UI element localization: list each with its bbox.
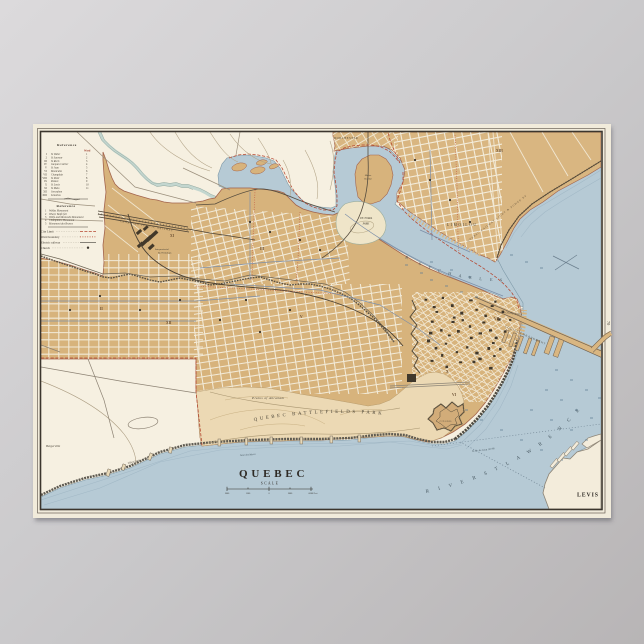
svg-text:X: X [446,370,449,374]
svg-text:XI: XI [170,234,175,238]
svg-text:Plains of Abraham: Plains of Abraham [251,396,285,400]
svg-text:CITADEL: CITADEL [440,420,453,423]
svg-text:LEVIS: LEVIS [577,493,599,499]
svg-text:VII: VII [494,317,500,321]
svg-text:VICTORIA: VICTORIA [360,217,373,220]
svg-text:VI: VI [452,393,457,397]
svg-text:Hospital: Hospital [363,178,372,181]
svg-text:Electric railway: Electric railway [41,241,61,245]
svg-text:Ry Workshops: Ry Workshops [158,252,172,254]
svg-text:XIII: XIII [496,149,503,153]
svg-text:City Limit: City Limit [41,230,54,234]
svg-text:XIII: XIII [42,194,47,197]
svg-text:70: 70 [606,321,611,325]
svg-text:6000 Feet: 6000 Feet [309,493,318,495]
svg-text:Monument des Braves: Monument des Braves [48,222,73,225]
svg-text:Church: Church [41,246,50,250]
svg-text:Bergerville: Bergerville [46,444,61,448]
svg-text:LIMOILOU: LIMOILOU [447,223,478,227]
svg-text:V: V [300,315,303,319]
svg-text:QUEBEC: QUEBEC [239,468,308,480]
svg-text:PARK: PARK [362,223,370,226]
svg-text:XII: XII [166,321,172,325]
svg-text:DORCHESTER: DORCHESTER [334,137,358,140]
svg-text:Reference: Reference [57,204,76,208]
svg-text:Ward boundary: Ward boundary [41,235,60,239]
svg-text:SCALE: SCALE [261,482,279,486]
svg-text:Marine: Marine [364,175,371,177]
svg-text:Reference: Reference [57,143,77,147]
svg-text:III: III [260,247,265,251]
svg-text:Limoilou: Limoilou [50,194,61,197]
svg-text:Interprovincial: Interprovincial [155,249,169,251]
